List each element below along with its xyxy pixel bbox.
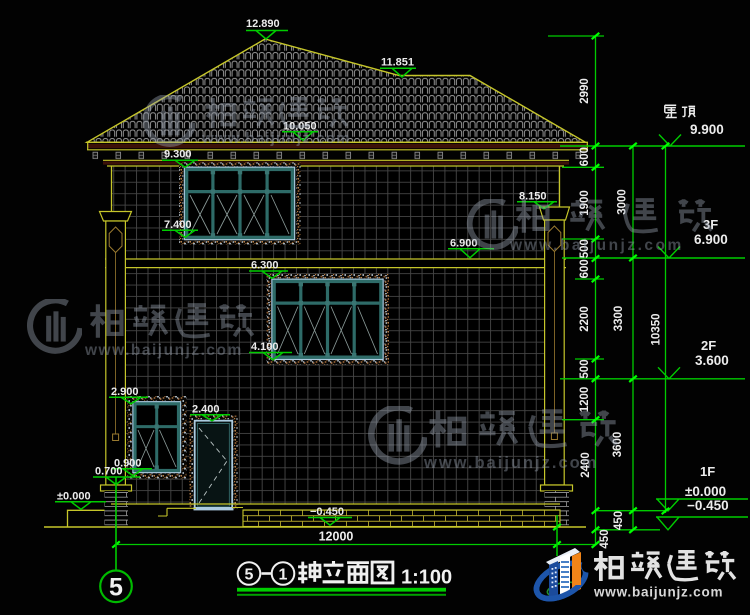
svg-text:2F: 2F: [701, 338, 716, 353]
svg-text:1: 1: [279, 567, 288, 584]
svg-text:5: 5: [245, 567, 254, 584]
svg-text:2.400: 2.400: [192, 403, 220, 415]
svg-text:7.400: 7.400: [164, 219, 192, 231]
svg-text:600: 600: [579, 147, 591, 166]
svg-text:±0.000: ±0.000: [57, 490, 91, 502]
svg-text:−0.450: −0.450: [687, 498, 729, 513]
svg-text:1F: 1F: [700, 464, 715, 479]
svg-text:3.600: 3.600: [695, 353, 729, 368]
svg-text:1:100: 1:100: [401, 567, 452, 589]
svg-text:600: 600: [579, 259, 591, 278]
svg-text:www.baijunjz.com: www.baijunjz.com: [423, 454, 598, 472]
svg-text:www.baijunjz.com: www.baijunjz.com: [201, 130, 351, 147]
svg-text:12.890: 12.890: [246, 18, 280, 30]
svg-text:4.100: 4.100: [251, 341, 279, 353]
svg-text:9.900: 9.900: [690, 122, 724, 137]
svg-text:9.300: 9.300: [164, 149, 192, 161]
svg-text:1200: 1200: [579, 387, 591, 413]
svg-text:2.900: 2.900: [111, 386, 139, 398]
svg-text:450: 450: [599, 529, 611, 548]
svg-text:2990: 2990: [579, 78, 591, 104]
svg-text:12000: 12000: [319, 530, 354, 544]
svg-text:0.700: 0.700: [95, 466, 123, 478]
svg-text:11.851: 11.851: [381, 57, 414, 69]
svg-text:2200: 2200: [579, 306, 591, 332]
svg-text:6.300: 6.300: [251, 260, 279, 272]
svg-text:−0.450: −0.450: [310, 506, 344, 518]
svg-text:www.baijunjz.com: www.baijunjz.com: [509, 237, 684, 254]
svg-text:5: 5: [109, 574, 123, 602]
svg-text:3300: 3300: [613, 306, 625, 332]
svg-text:450: 450: [613, 511, 625, 530]
svg-text:www.baijunjz.com: www.baijunjz.com: [84, 342, 243, 359]
svg-text:6.900: 6.900: [694, 232, 728, 247]
svg-text:±0.000: ±0.000: [685, 484, 726, 499]
svg-text:www.baijunjz.com: www.baijunjz.com: [593, 585, 723, 600]
svg-text:10350: 10350: [651, 314, 663, 346]
svg-text:500: 500: [579, 359, 591, 378]
